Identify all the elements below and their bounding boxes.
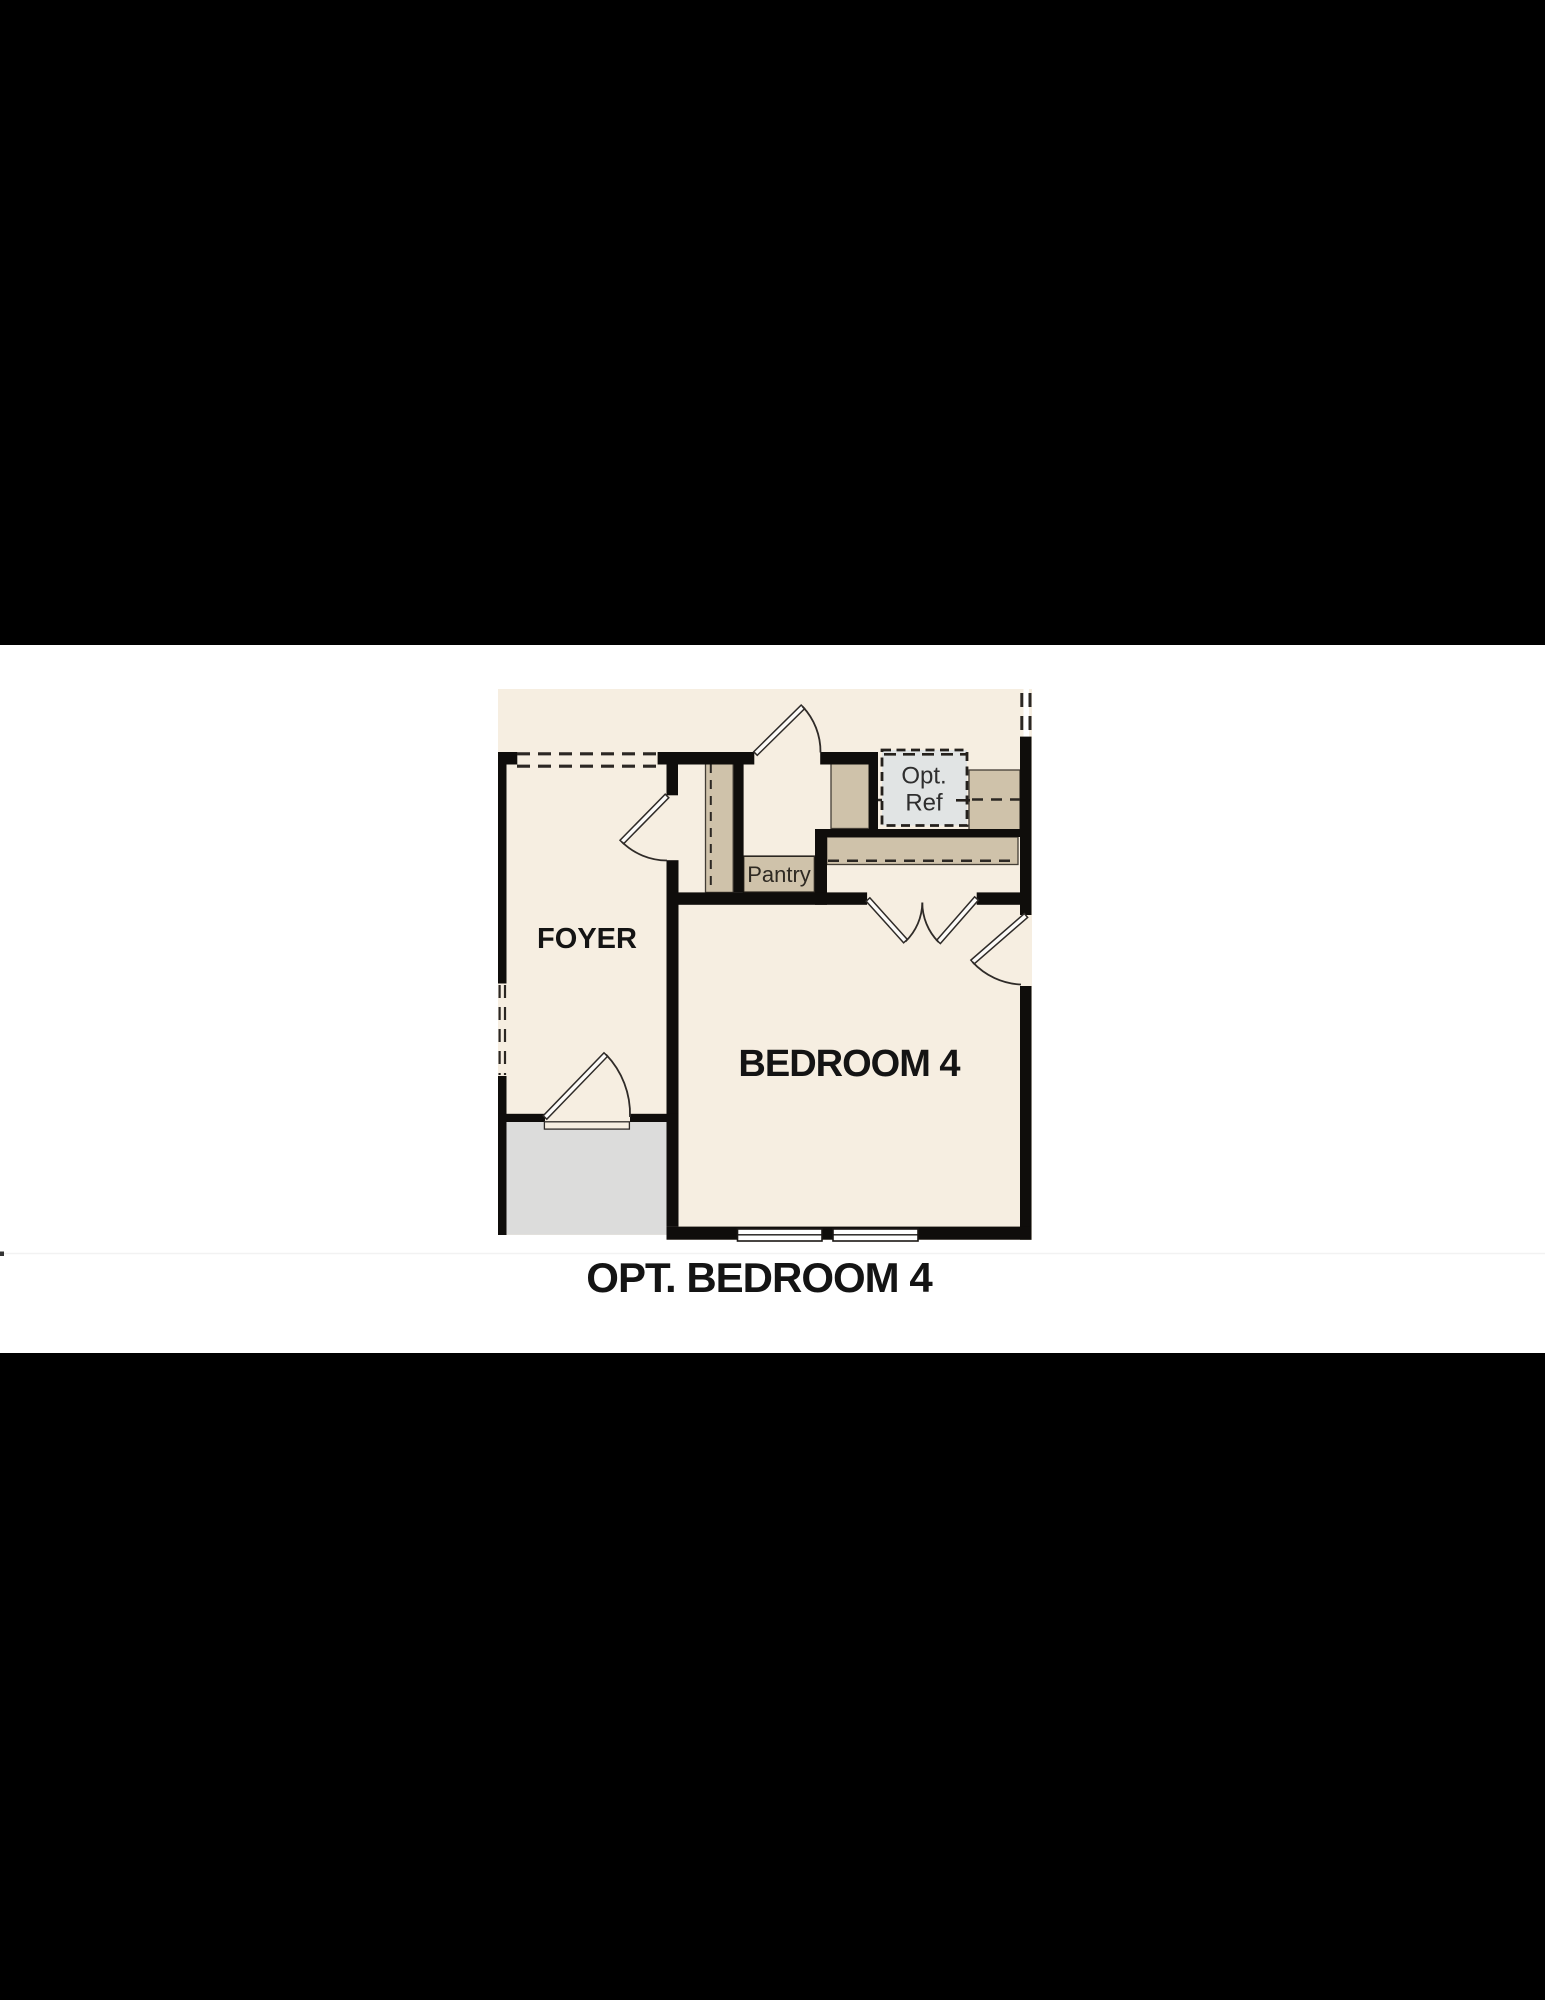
svg-text:Opt.: Opt. — [901, 763, 946, 790]
svg-text:BEDROOM 4: BEDROOM 4 — [738, 1043, 960, 1085]
svg-text:Pantry: Pantry — [747, 862, 811, 887]
svg-text:FOYER: FOYER — [537, 923, 637, 955]
svg-text:Ref: Ref — [905, 790, 943, 817]
svg-text:OPT. BEDROOM 4: OPT. BEDROOM 4 — [586, 1254, 933, 1301]
